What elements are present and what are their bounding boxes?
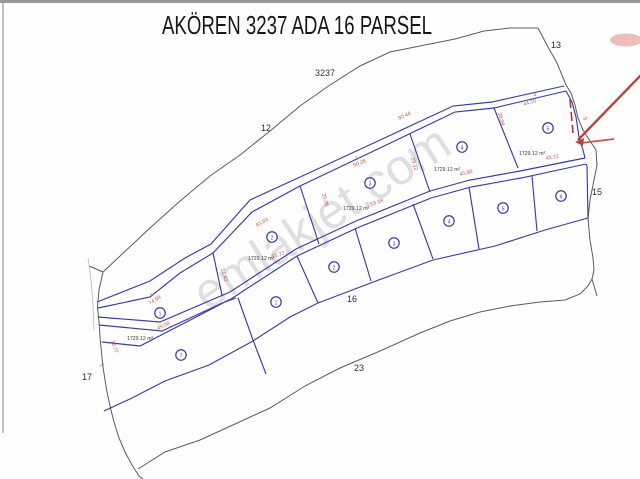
svg-text:15: 15 xyxy=(592,187,602,197)
svg-text:16: 16 xyxy=(347,294,357,304)
svg-text:1: 1 xyxy=(159,312,162,318)
svg-text:1: 1 xyxy=(275,301,278,307)
svg-text:2: 2 xyxy=(271,236,274,242)
svg-text:3: 3 xyxy=(393,242,396,248)
svg-text:1729.12 m²: 1729.12 m² xyxy=(127,336,154,342)
svg-text:1729.12 m²: 1729.12 m² xyxy=(519,151,546,157)
svg-text:13: 13 xyxy=(551,40,561,50)
svg-text:3: 3 xyxy=(369,182,372,188)
svg-text:17: 17 xyxy=(82,372,92,382)
svg-text:1729.12 m²: 1729.12 m² xyxy=(434,167,461,173)
svg-text:2: 2 xyxy=(333,266,336,272)
svg-text:5: 5 xyxy=(502,207,505,213)
svg-text:1729.12 m²: 1729.12 m² xyxy=(248,256,275,262)
svg-text:7: 7 xyxy=(180,354,183,360)
svg-text:3237: 3237 xyxy=(315,68,335,78)
svg-text:23: 23 xyxy=(354,363,364,373)
svg-text:6: 6 xyxy=(560,195,563,201)
svg-text:5: 5 xyxy=(547,127,550,133)
svg-text:4: 4 xyxy=(448,220,451,226)
svg-text:4: 4 xyxy=(461,146,464,152)
svg-text:AKÖREN 3237 ADA 16 PARSEL: AKÖREN 3237 ADA 16 PARSEL xyxy=(162,10,432,40)
svg-text:1729.12 m²: 1729.12 m² xyxy=(343,206,370,212)
